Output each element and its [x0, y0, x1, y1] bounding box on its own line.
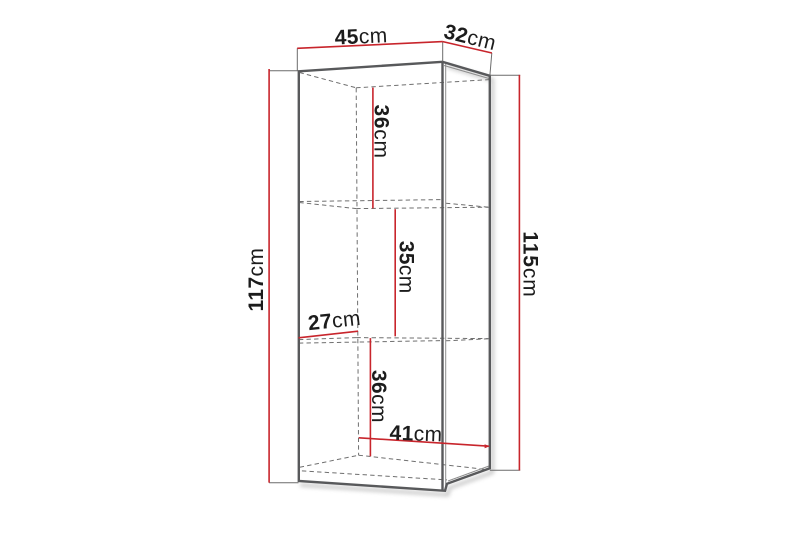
- svg-text:36cm: 36cm: [367, 370, 390, 423]
- svg-text:45cm: 45cm: [334, 24, 388, 49]
- svg-text:41cm: 41cm: [389, 422, 443, 447]
- svg-text:35cm: 35cm: [395, 241, 418, 294]
- svg-text:117cm: 117cm: [245, 248, 268, 312]
- svg-text:115cm: 115cm: [519, 231, 542, 297]
- svg-text:36cm: 36cm: [370, 105, 393, 159]
